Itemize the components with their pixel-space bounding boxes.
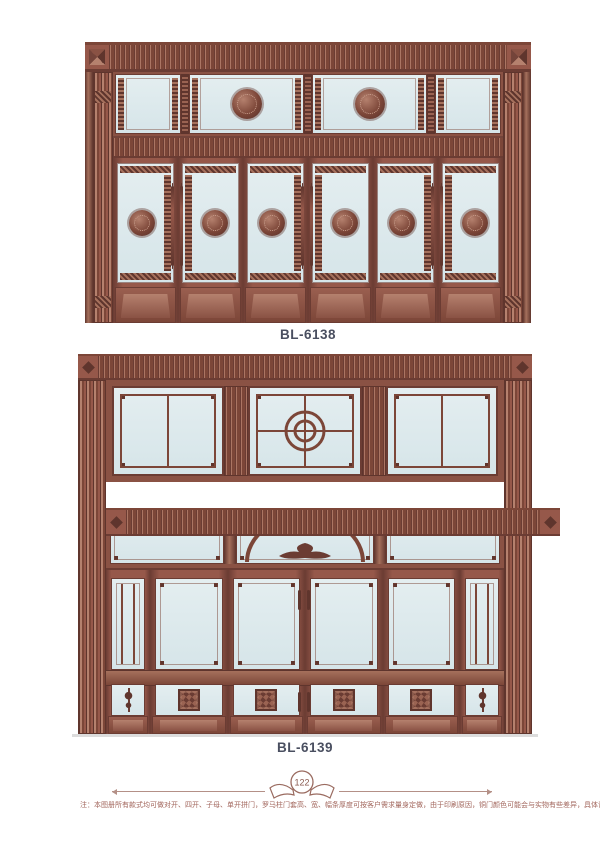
medallion-ornament <box>332 210 358 236</box>
transom-glass-panel <box>312 74 427 134</box>
door-glass-panel <box>312 163 369 283</box>
door-handle <box>298 590 301 608</box>
medallion-ornament <box>389 210 415 236</box>
door-glass-panel <box>310 578 378 670</box>
door-leaf <box>113 158 178 323</box>
door-handle <box>310 186 313 266</box>
cornice-corner-block <box>85 45 109 69</box>
medallion-ornament <box>129 210 155 236</box>
door-glass-panel <box>111 578 145 670</box>
page-number: 122 <box>294 778 309 788</box>
square-medallion-ornament <box>333 689 355 711</box>
door-handle <box>307 590 310 608</box>
kick-panel <box>108 716 148 734</box>
band-corner-block <box>540 510 560 534</box>
catalog-page: BL-6138 <box>0 0 600 852</box>
door-handle <box>301 186 304 266</box>
door-glass-panel <box>247 163 304 283</box>
medallion-ornament <box>202 210 228 236</box>
note-text: 注：本图册所有款式均可做对开、四开、子母、单开拼门，罗马柱门套高、宽、幅条厚度可… <box>80 801 520 811</box>
cornice-corner-block <box>507 45 531 69</box>
door-body <box>78 380 532 734</box>
door-leaf <box>228 570 306 734</box>
band-spacer <box>106 482 504 510</box>
kick-panel <box>385 716 459 734</box>
door-glass-panel <box>465 684 499 716</box>
kick-panel <box>245 287 306 323</box>
kick-panel <box>307 716 381 734</box>
door-leaves <box>113 158 503 323</box>
kick-panel <box>230 716 304 734</box>
door-glass-panel <box>377 163 434 283</box>
kick-panel <box>310 287 371 323</box>
door-glass-panel <box>111 684 145 716</box>
window-mullion <box>224 386 248 476</box>
door-cornice <box>85 42 531 72</box>
transom-glass-panel <box>189 74 304 134</box>
door-body <box>85 72 531 323</box>
pilaster-column <box>93 72 113 323</box>
door-glass-panel <box>155 684 223 716</box>
transom-mullion <box>304 74 312 134</box>
ribbed-band <box>98 356 512 378</box>
door-leaf <box>178 158 243 323</box>
kick-panel <box>180 287 241 323</box>
kick-panel <box>462 716 502 734</box>
door-glass-panel <box>117 163 174 283</box>
door-cornice <box>78 354 532 380</box>
door-glass-panel <box>310 684 378 716</box>
door-leaves <box>106 570 504 734</box>
transom-glass-panel <box>435 74 501 134</box>
window-glass-panel <box>386 386 498 476</box>
transom-mullion <box>181 74 189 134</box>
pilaster-column <box>503 72 523 323</box>
door-leaf <box>373 158 438 323</box>
floor-shadow <box>72 734 538 737</box>
pilaster-column <box>78 380 106 734</box>
door-leaf <box>438 158 503 323</box>
door-glass-panel <box>442 163 499 283</box>
door-glass-panel <box>388 684 456 716</box>
door-handle <box>171 186 174 266</box>
sidelite-panel <box>106 570 150 734</box>
door-leaf <box>305 570 383 734</box>
model-label: BL-6138 <box>85 327 531 342</box>
door-leaf <box>308 158 373 323</box>
model-label: BL-6139 <box>78 740 532 755</box>
cornice-corner-block <box>512 356 532 378</box>
door-handle <box>431 186 434 266</box>
ribbed-band <box>113 136 503 158</box>
door-leaf <box>383 570 461 734</box>
page-number-ribbon-ornament: 122 <box>260 768 344 804</box>
kick-panel <box>440 287 501 323</box>
ornament <box>124 688 133 712</box>
door-handle <box>298 692 301 710</box>
ribbed-band <box>106 508 560 536</box>
transom-row <box>113 72 503 136</box>
divider-line <box>339 791 492 792</box>
page-footer: 122 <box>112 768 492 804</box>
ring-grille-icon <box>281 407 329 455</box>
square-medallion-ornament <box>178 689 200 711</box>
window-glass-panel <box>248 386 362 476</box>
kick-panel <box>152 716 226 734</box>
door-glass-panel <box>155 578 223 670</box>
door-handle <box>307 692 310 710</box>
transom-glass-panel <box>115 74 181 134</box>
door-handle <box>440 186 443 266</box>
product-image-bl-6138 <box>85 42 531 323</box>
band-corner-block <box>106 510 126 534</box>
kick-panel <box>115 287 176 323</box>
door-leaf <box>243 158 308 323</box>
square-medallion-ornament <box>255 689 277 711</box>
ornament <box>478 688 487 712</box>
medallion-ornament <box>462 210 488 236</box>
door-leaf <box>150 570 228 734</box>
door-glass-panel <box>182 163 239 283</box>
medallion-ornament <box>232 89 262 119</box>
door-glass-panel <box>465 578 499 670</box>
kick-panel <box>375 287 436 323</box>
divider-line <box>112 791 265 792</box>
cornice-corner-block <box>78 356 98 378</box>
ribbed-band <box>109 45 507 69</box>
door-glass-panel <box>233 684 301 716</box>
door-glass-panel <box>233 578 301 670</box>
door-center <box>106 380 504 734</box>
square-medallion-ornament <box>410 689 432 711</box>
ribbed-band <box>126 510 540 534</box>
sidelite-panel <box>460 570 504 734</box>
door-edge <box>523 72 531 323</box>
upper-window-row <box>106 380 504 482</box>
door-edge <box>85 72 93 323</box>
transom-mullion <box>427 74 435 134</box>
medallion-ornament <box>355 89 385 119</box>
product-image-bl-6139 <box>78 354 532 734</box>
window-mullion <box>362 386 386 476</box>
window-glass-panel <box>112 386 224 476</box>
door-glass-panel <box>388 578 456 670</box>
door-center <box>113 72 503 323</box>
door-handle <box>180 186 183 266</box>
medallion-ornament <box>259 210 285 236</box>
pilaster-column <box>504 380 532 734</box>
